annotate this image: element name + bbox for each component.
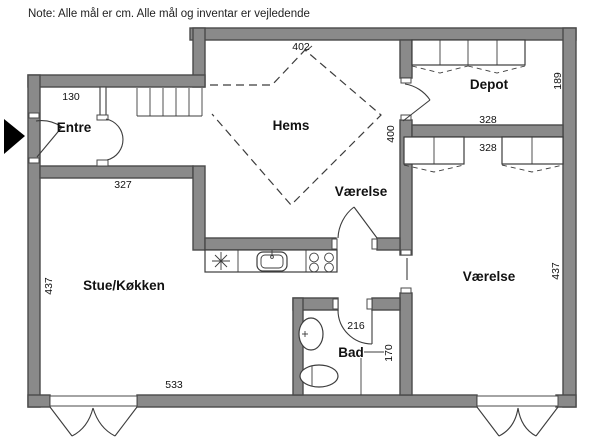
stairs — [137, 88, 202, 116]
dim-vaerelse-right-depth: 437 — [550, 262, 562, 280]
wall-entre-partition — [100, 87, 106, 118]
vaerelse-mid-door-swing — [338, 207, 377, 238]
dim-stue-width-top: 327 — [114, 179, 132, 191]
dim-hems-width: 402 — [292, 41, 310, 53]
wall-bottom-middle — [137, 395, 477, 407]
sill-french-door-left — [50, 396, 137, 406]
dim-stue-width-bottom: 533 — [165, 379, 183, 391]
dim-depot-depth: 189 — [552, 72, 564, 90]
wall-kitchen-top — [205, 238, 336, 250]
label-hems: Hems — [273, 118, 310, 133]
wardrobe-depot — [412, 40, 525, 73]
wall-top — [190, 28, 576, 40]
dim-bad-depth: 170 — [383, 344, 395, 362]
entrance-arrow-icon — [4, 119, 25, 154]
french-doors-right — [477, 407, 558, 436]
wall-left — [28, 75, 40, 407]
label-bad: Bad — [338, 345, 364, 360]
note-text: Note: Alle mål er cm. Alle mål og invent… — [28, 8, 310, 20]
entre-hall-door-swing — [106, 119, 123, 160]
wall-kitchen-nook — [193, 166, 205, 250]
wardrobe-vaerelse-right — [502, 137, 563, 172]
dim-depot-width: 328 — [479, 114, 497, 126]
label-vaerelse-right: Værelse — [463, 269, 516, 284]
wall-mid-vertical-c — [400, 293, 412, 395]
floor-plan: Note: Alle mål er cm. Alle mål og invent… — [0, 0, 600, 448]
wardrobe-vaerelse-left — [404, 137, 464, 172]
wall-entre-bottom — [40, 166, 193, 178]
floor-plan-page: Note: Alle mål er cm. Alle mål og invent… — [0, 0, 600, 448]
wall-depot-bottom — [412, 125, 563, 137]
dim-stue-depth: 437 — [43, 277, 55, 295]
wall-bottom-left — [28, 395, 50, 407]
dim-entre-width: 130 — [62, 91, 80, 103]
label-entre: Entre — [57, 120, 92, 135]
bathroom-sink-icon — [299, 318, 323, 350]
wall-bad-top-right — [372, 298, 400, 310]
wall-kitchen-stub — [377, 238, 400, 250]
wall-right — [563, 28, 576, 407]
french-doors-left — [50, 407, 137, 436]
wall-step-horizontal — [28, 75, 205, 87]
wall-bottom-right — [556, 395, 576, 407]
toilet-icon — [300, 365, 338, 387]
dim-vaerelse-right-width: 328 — [479, 142, 497, 154]
sill-french-door-right — [477, 396, 558, 406]
label-stue-kokken: Stue/Køkken — [83, 278, 165, 293]
dim-hems-depth: 400 — [385, 125, 397, 143]
label-depot: Depot — [470, 77, 509, 92]
kitchen-counter — [205, 250, 337, 272]
kitchen-sink-icon — [257, 250, 287, 271]
label-vaerelse-mid: Værelse — [335, 184, 388, 199]
wall-mid-vertical-a — [400, 40, 412, 78]
dim-bad-width: 216 — [347, 320, 365, 332]
